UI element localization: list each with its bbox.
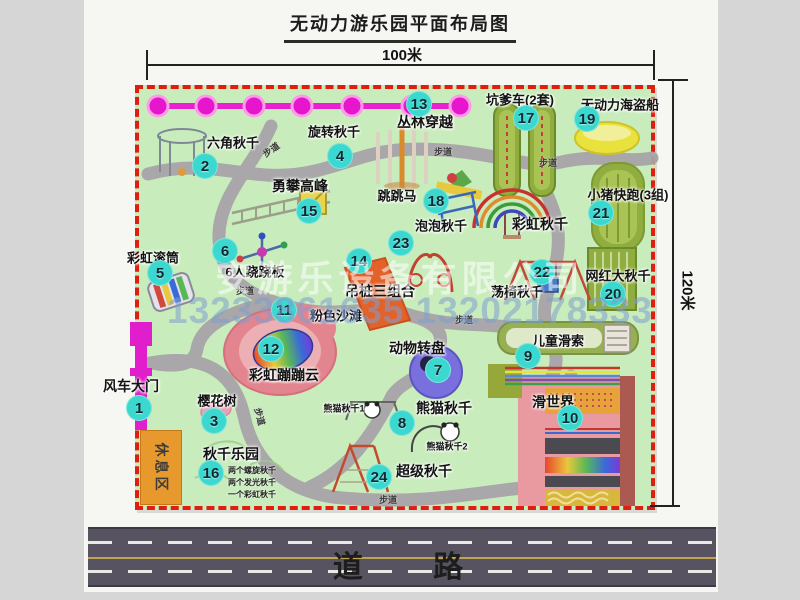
swing-park-note-3: 一个彩虹秋千 [228, 489, 276, 500]
swing-park-note-1: 两个螺旋秋千 [228, 465, 276, 476]
badge-14: 14 [346, 248, 372, 274]
badge-2: 2 [192, 153, 218, 179]
badge-10: 10 [557, 405, 583, 431]
dim-top-tick-left [146, 50, 148, 80]
badge-4: 4 [327, 143, 353, 169]
rest-area: 休息区 [140, 430, 182, 505]
badge-23: 23 [388, 230, 414, 256]
badge-17: 17 [513, 105, 539, 131]
label-animal-carousel: 动物转盘 [389, 338, 445, 358]
walkway-label: 步道 [539, 156, 557, 169]
label-pink-beach: 粉色沙滩 [310, 306, 362, 325]
badge-18: 18 [423, 188, 449, 214]
badge-13: 13 [406, 91, 432, 117]
label-swing-chair: 荡椅秋千 [491, 282, 543, 301]
badge-1: 1 [126, 395, 152, 421]
badge-11: 11 [271, 297, 297, 323]
label-climbing: 勇攀高峰 [272, 176, 328, 196]
badge-7: 7 [425, 357, 451, 383]
label-windmill-gate: 风车大门 [103, 376, 159, 396]
badge-15: 15 [296, 198, 322, 224]
label-kids-zipline: 儿童滑索 [532, 331, 584, 350]
label-cherry-tree: 樱花树 [197, 391, 236, 410]
badge-24: 24 [366, 464, 392, 490]
label-hex-swing: 六角秋千 [207, 133, 259, 152]
dim-right-tick-top [658, 79, 688, 81]
road: 道 路 [88, 527, 716, 587]
badge-19: 19 [574, 106, 600, 132]
badge-12: 12 [258, 336, 284, 362]
dim-right-line [672, 80, 674, 506]
badge-20: 20 [600, 281, 626, 307]
label-rainbow-swing: 彩虹秋千 [512, 214, 568, 234]
swing-park-note-2: 两个发光秋千 [228, 477, 276, 488]
walkway-label: 步道 [434, 145, 452, 158]
badge-16: 16 [198, 460, 224, 486]
label-seesaw-6p: 6人跷跷板 [225, 262, 284, 281]
label-panda-swing-1: 熊猫秋千1 [323, 402, 364, 415]
label-panda-swing: 熊猫秋千 [416, 398, 472, 418]
badge-3: 3 [201, 408, 227, 434]
road-label: 道 路 [88, 542, 716, 586]
walkway-label: 步道 [455, 313, 473, 326]
dim-height-label: 120米 [678, 270, 699, 310]
label-hanging-pile: 吊桩三组合 [345, 281, 415, 301]
label-super-swing: 超级秋千 [396, 461, 452, 481]
title-bar: 无动力游乐园平面布局图 [0, 10, 800, 43]
dim-top-tick-right [653, 50, 655, 80]
dim-width-label: 100米 [382, 44, 422, 65]
badge-6: 6 [212, 238, 238, 264]
badge-9: 9 [515, 343, 541, 369]
walkway-label: 步道 [379, 493, 397, 506]
label-rotating-swing: 旋转秋千 [308, 122, 360, 141]
dim-right-tick-bottom [650, 505, 680, 507]
rest-area-label: 休息区 [151, 442, 171, 493]
label-bubble-swing: 泡泡秋千 [415, 216, 467, 235]
badge-22: 22 [529, 259, 555, 285]
badge-5: 5 [147, 260, 173, 286]
label-panda-swing-2: 熊猫秋千2 [426, 440, 467, 453]
badge-21: 21 [588, 200, 614, 226]
badge-8: 8 [389, 410, 415, 436]
label-bounce-cloud: 彩虹蹦蹦云 [249, 365, 319, 385]
walkway-label: 步道 [236, 284, 254, 297]
page-title: 无动力游乐园平面布局图 [284, 10, 516, 43]
screenshot-root: 无动力游乐园平面布局图 100米 120米 [0, 0, 800, 600]
label-jump-horse: 跳跳马 [377, 186, 416, 205]
